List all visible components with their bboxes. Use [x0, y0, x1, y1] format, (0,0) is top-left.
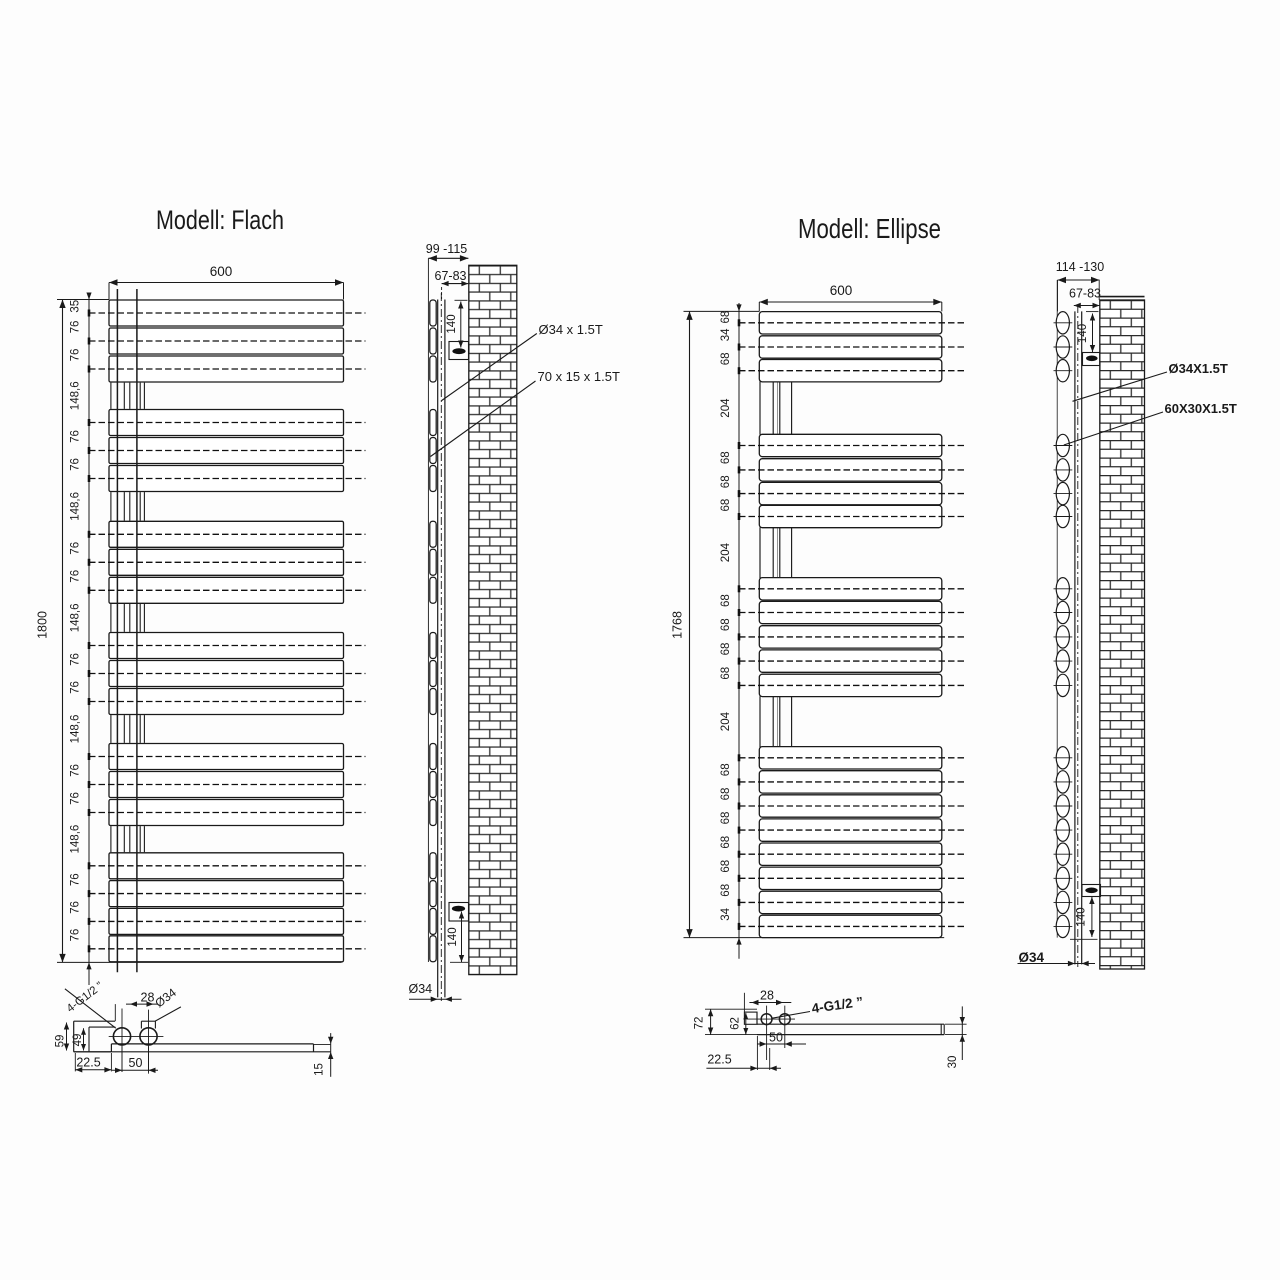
- svg-text:140: 140: [1077, 324, 1089, 343]
- svg-text:76: 76: [70, 792, 82, 805]
- svg-text:76: 76: [70, 929, 82, 942]
- svg-text:30: 30: [947, 1056, 959, 1069]
- svg-text:148,6: 148,6: [70, 492, 82, 521]
- svg-text:Ø34: Ø34: [1019, 950, 1045, 965]
- svg-text:34: 34: [720, 328, 732, 341]
- svg-text:60X30X1.5T: 60X30X1.5T: [1165, 401, 1237, 416]
- svg-text:28: 28: [760, 989, 774, 1003]
- svg-text:50: 50: [129, 1056, 143, 1070]
- svg-text:15: 15: [313, 1063, 325, 1076]
- svg-text:68: 68: [720, 451, 732, 464]
- svg-text:68: 68: [720, 311, 732, 324]
- svg-text:76: 76: [70, 901, 82, 914]
- svg-text:68: 68: [720, 667, 732, 680]
- svg-text:68: 68: [720, 594, 732, 607]
- svg-text:99 -115: 99 -115: [426, 242, 468, 256]
- svg-text:76: 76: [70, 349, 82, 362]
- svg-text:76: 76: [70, 430, 82, 443]
- svg-text:Modell: Flach: Modell: Flach: [156, 205, 284, 235]
- svg-text:76: 76: [70, 458, 82, 471]
- svg-text:600: 600: [830, 283, 853, 298]
- svg-text:Ø34X1.5T: Ø34X1.5T: [1169, 361, 1228, 376]
- svg-text:148,6: 148,6: [70, 604, 82, 633]
- svg-text:76: 76: [70, 321, 82, 334]
- svg-text:1768: 1768: [671, 611, 685, 639]
- svg-text:68: 68: [720, 763, 732, 776]
- svg-text:204: 204: [720, 711, 732, 731]
- svg-text:68: 68: [720, 475, 732, 488]
- svg-text:22.5: 22.5: [707, 1053, 731, 1067]
- svg-text:68: 68: [720, 860, 732, 873]
- svg-text:34: 34: [720, 907, 732, 920]
- svg-text:76: 76: [70, 873, 82, 886]
- svg-text:62: 62: [730, 1017, 742, 1030]
- svg-text:68: 68: [720, 812, 732, 825]
- svg-text:Ø34 x 1.5T: Ø34 x 1.5T: [539, 322, 603, 337]
- svg-text:76: 76: [70, 542, 82, 555]
- svg-text:600: 600: [210, 264, 233, 279]
- svg-text:114 -130: 114 -130: [1056, 260, 1104, 274]
- svg-text:140: 140: [446, 314, 458, 333]
- svg-text:68: 68: [720, 788, 732, 801]
- svg-text:35: 35: [70, 300, 82, 313]
- svg-text:72: 72: [694, 1017, 706, 1030]
- svg-text:148,6: 148,6: [70, 381, 82, 410]
- svg-text:59: 59: [55, 1035, 67, 1048]
- svg-text:50: 50: [769, 1031, 783, 1045]
- svg-text:148,6: 148,6: [70, 715, 82, 744]
- svg-text:148,6: 148,6: [70, 825, 82, 854]
- svg-text:204: 204: [720, 542, 732, 562]
- svg-text:76: 76: [70, 681, 82, 694]
- svg-text:76: 76: [70, 653, 82, 666]
- svg-text:68: 68: [720, 618, 732, 631]
- svg-text:68: 68: [720, 884, 732, 897]
- svg-text:204: 204: [720, 398, 732, 418]
- svg-text:140: 140: [1076, 907, 1088, 926]
- svg-text:49: 49: [72, 1034, 84, 1047]
- svg-text:Ø34: Ø34: [409, 982, 433, 996]
- svg-text:76: 76: [70, 570, 82, 583]
- svg-text:68: 68: [720, 353, 732, 366]
- svg-text:68: 68: [720, 643, 732, 656]
- svg-text:1800: 1800: [36, 611, 50, 639]
- svg-text:68: 68: [720, 836, 732, 849]
- svg-text:Modell: Ellipse: Modell: Ellipse: [798, 213, 941, 244]
- svg-text:67-83: 67-83: [1069, 287, 1101, 301]
- svg-text:140: 140: [447, 927, 459, 946]
- svg-text:68: 68: [720, 499, 732, 512]
- svg-text:76: 76: [70, 764, 82, 777]
- svg-text:67-83: 67-83: [435, 269, 467, 283]
- svg-text:22.5: 22.5: [76, 1056, 100, 1070]
- svg-text:70 x 15 x 1.5T: 70 x 15 x 1.5T: [538, 369, 620, 384]
